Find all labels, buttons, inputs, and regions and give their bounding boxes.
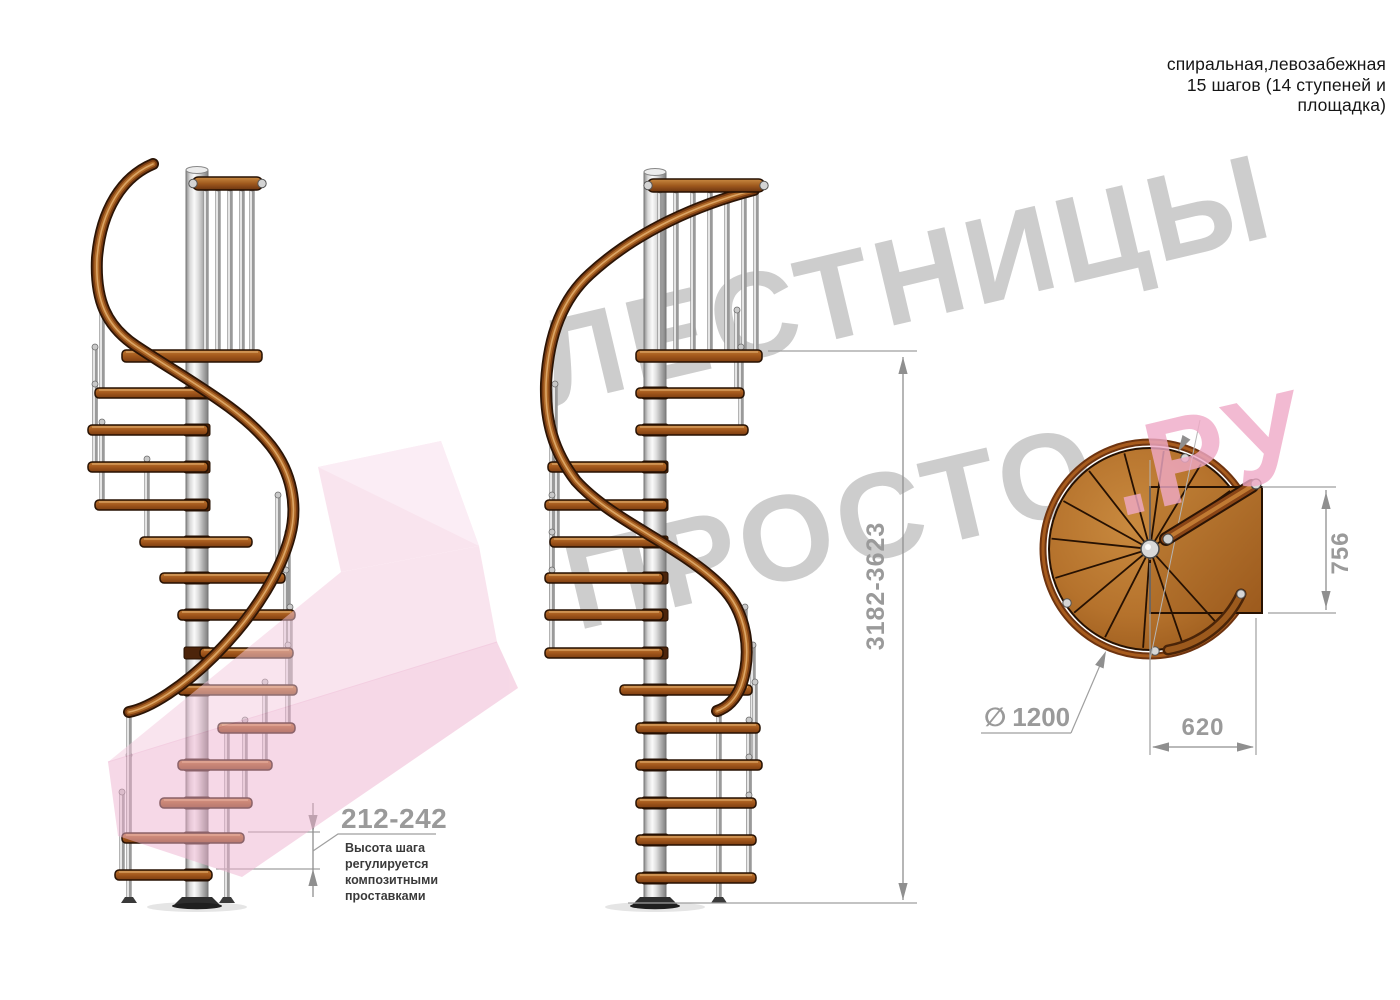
step-height-note-line: регулируется [345, 857, 428, 871]
title-line: 15 шагов (14 ступеней и [1167, 75, 1386, 96]
platform-depth-dimension: 756 [1327, 531, 1354, 574]
platform-width-dimension: 620 [1181, 714, 1224, 741]
title-line: площадка) [1167, 95, 1386, 116]
diameter-label: ∅1200 [984, 702, 1070, 732]
step-height-dimension: 212-242 [341, 803, 447, 834]
title-line: спиральная,левозабежная [1167, 54, 1386, 75]
diameter-value: 1200 [1012, 702, 1070, 732]
total-height-dimension: 3182-3623 [862, 522, 890, 651]
title-block: спиральная,левозабежная 15 шагов (14 сту… [1167, 54, 1386, 116]
diameter-symbol: ∅ [984, 702, 1006, 732]
elevation-view-front [88, 164, 297, 912]
step-height-note-line: композитными [345, 873, 438, 887]
elevation-view-side [545, 169, 768, 913]
technical-drawing-page: { "title": { "lines": ["спиральная,левоз… [0, 0, 1400, 1000]
step-height-note-line: Высота шага [345, 841, 426, 855]
plan-view [1043, 420, 1262, 660]
staircase-drawing: 3182-3623 212-242 Высота шага регулирует… [0, 0, 1400, 1000]
step-height-note-line: проставками [345, 889, 426, 903]
